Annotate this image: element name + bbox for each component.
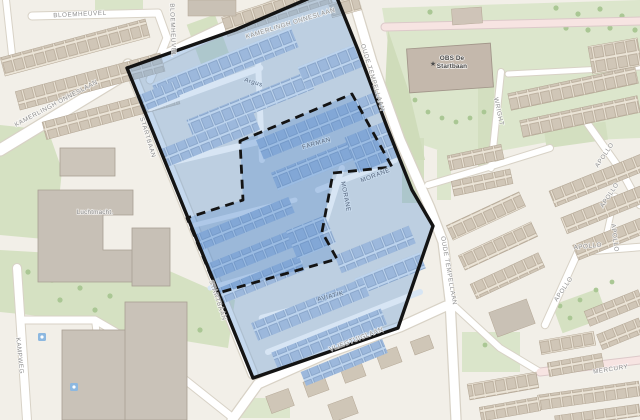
school-label-line1: OBS De [440, 55, 465, 62]
school-icon[interactable]: ★ [430, 60, 436, 68]
luchtmacht-label: Luchtmacht. [77, 209, 114, 216]
map-viewport[interactable]: BLOEMHEUVEL BLOEMHEUVEL KAMERLINGH ONNES… [0, 0, 640, 420]
map-canvas[interactable]: BLOEMHEUVEL BLOEMHEUVEL KAMERLINGH ONNES… [0, 0, 640, 420]
school-label-line2: Startbaan [437, 63, 467, 70]
poi-marker-icon[interactable] [38, 333, 46, 341]
poi-marker-icon-2[interactable] [70, 383, 78, 391]
